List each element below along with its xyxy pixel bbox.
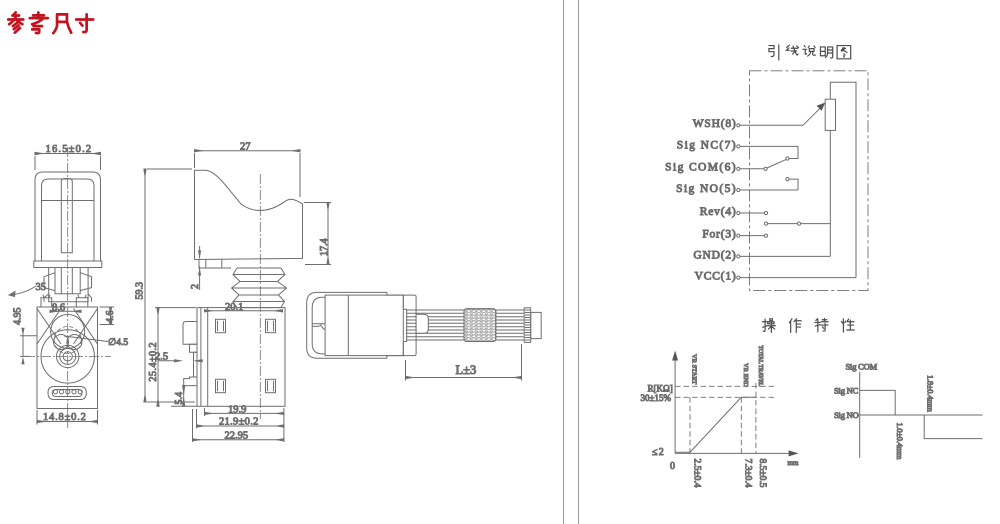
svg-text:2: 2 <box>190 284 201 289</box>
svg-text:59.3: 59.3 <box>135 282 146 300</box>
svg-text:TOTAL TRAVEL: TOTAL TRAVEL <box>757 346 763 387</box>
svg-text:25.4±0.2: 25.4±0.2 <box>148 342 159 382</box>
svg-text:VR START: VR START <box>691 354 698 384</box>
svg-text:Sig NO: Sig NO <box>834 410 859 420</box>
svg-text:27: 27 <box>240 142 251 153</box>
svg-text:22.95: 22.95 <box>225 430 249 441</box>
svg-text:0: 0 <box>670 461 675 472</box>
svg-text:≤2: ≤2 <box>652 447 665 458</box>
svg-text:Sig NO(5): Sig NO(5) <box>676 183 737 195</box>
svg-text:Rev(4): Rev(4) <box>700 206 737 218</box>
svg-text:1.8±0.4mm: 1.8±0.4mm <box>926 375 935 413</box>
svg-text:8.5±0.5: 8.5±0.5 <box>757 459 767 488</box>
svg-text:L±3: L±3 <box>456 363 477 377</box>
svg-text:1.0±0.4mm: 1.0±0.4mm <box>895 423 904 461</box>
svg-text:35: 35 <box>36 282 47 293</box>
svg-text:16.5±0.2: 16.5±0.2 <box>46 144 93 155</box>
svg-text:mm: mm <box>788 459 799 467</box>
svg-text:WSH(8): WSH(8) <box>693 118 737 130</box>
svg-text:∅4.5: ∅4.5 <box>108 337 128 348</box>
svg-text:30±15%: 30±15% <box>641 393 672 403</box>
svg-text:14.8±0.2: 14.8±0.2 <box>43 412 87 423</box>
svg-text:Sig COM: Sig COM <box>846 362 878 372</box>
svg-text:GND(2): GND(2) <box>693 249 736 261</box>
svg-text:Sig NC: Sig NC <box>834 386 859 396</box>
svg-text:19.9: 19.9 <box>228 404 246 415</box>
svg-text:4.6: 4.6 <box>105 311 116 324</box>
svg-text:R[KΩ]: R[KΩ] <box>648 384 673 394</box>
svg-text:21.9±0.2: 21.9±0.2 <box>219 417 259 428</box>
svg-text:VR END: VR END <box>742 363 749 387</box>
svg-text:5.4: 5.4 <box>174 392 185 405</box>
svg-text:8.6: 8.6 <box>52 303 65 314</box>
svg-text:20.1: 20.1 <box>225 302 243 313</box>
svg-text:7.3±0.4: 7.3±0.4 <box>743 459 753 488</box>
svg-text:Sig COM(6): Sig COM(6) <box>665 162 737 174</box>
svg-text:Sig NC(7): Sig NC(7) <box>677 139 737 151</box>
svg-text:17.4: 17.4 <box>319 239 330 257</box>
svg-text:For(3): For(3) <box>702 229 736 241</box>
svg-text:2.5±0.4: 2.5±0.4 <box>691 459 701 488</box>
svg-text:VCC(1): VCC(1) <box>695 271 737 283</box>
svg-text:4.95: 4.95 <box>13 308 24 326</box>
